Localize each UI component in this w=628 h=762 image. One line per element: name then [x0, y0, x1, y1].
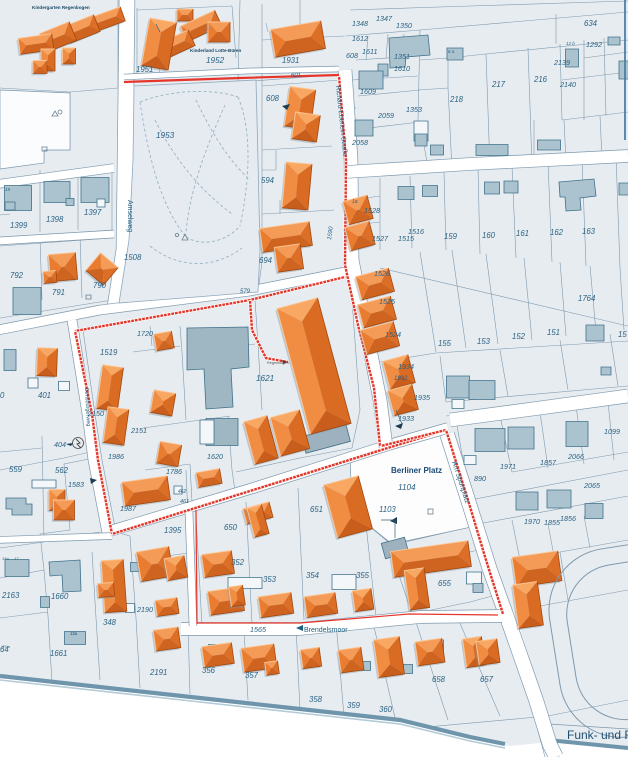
svg-text:151: 151: [547, 328, 560, 337]
svg-text:1528: 1528: [364, 206, 380, 215]
svg-text:1720: 1720: [137, 329, 153, 338]
svg-text:1292: 1292: [586, 40, 602, 49]
svg-text:404: 404: [54, 440, 66, 449]
svg-text:353: 353: [263, 575, 277, 584]
svg-text:6 a: 6 a: [448, 49, 455, 54]
svg-text:161: 161: [516, 229, 529, 238]
svg-text:791: 791: [52, 288, 65, 297]
svg-text:1660: 1660: [51, 592, 69, 601]
svg-text:Funk- und Fe: Funk- und Fe: [567, 728, 628, 742]
svg-text:2163: 2163: [1, 591, 20, 600]
svg-text:357: 357: [245, 671, 259, 680]
svg-text:2139: 2139: [553, 58, 570, 67]
svg-text:594: 594: [261, 176, 275, 185]
svg-text:462: 462: [178, 489, 187, 495]
svg-text:694: 694: [259, 256, 273, 265]
svg-text:1350: 1350: [396, 21, 412, 30]
svg-text:2065: 2065: [583, 481, 601, 490]
svg-text:1353: 1353: [406, 105, 422, 114]
svg-text:160: 160: [482, 231, 496, 240]
svg-text:13a: 13a: [70, 631, 78, 636]
svg-text:356: 356: [202, 666, 216, 675]
svg-text:19: 19: [5, 187, 11, 192]
svg-text:792: 792: [10, 271, 24, 280]
svg-text:2151: 2151: [130, 426, 147, 435]
svg-text:1524: 1524: [385, 330, 401, 339]
svg-text:1857: 1857: [540, 458, 557, 467]
svg-text:461: 461: [180, 499, 189, 505]
svg-text:1971: 1971: [500, 462, 516, 471]
svg-text:1855: 1855: [544, 518, 561, 527]
svg-text:Amselweg: Amselweg: [126, 200, 133, 232]
svg-text:1609: 1609: [360, 87, 376, 96]
svg-text:1970: 1970: [524, 517, 540, 526]
svg-text:12 b: 12 b: [566, 41, 575, 46]
svg-text:359: 359: [347, 701, 361, 710]
svg-text:608: 608: [266, 94, 280, 103]
svg-text:1934: 1934: [398, 362, 414, 371]
svg-text:355: 355: [356, 571, 370, 580]
svg-text:608: 608: [346, 51, 358, 60]
svg-text:2191: 2191: [149, 668, 167, 677]
svg-text:1565: 1565: [250, 625, 267, 634]
svg-text:2190: 2190: [136, 605, 153, 614]
svg-text:218: 218: [449, 95, 464, 104]
svg-text:1398: 1398: [46, 215, 64, 224]
svg-text:890: 890: [474, 474, 486, 483]
svg-text:658: 658: [432, 675, 446, 684]
svg-text:1525: 1525: [379, 297, 396, 306]
svg-text:1952: 1952: [206, 56, 225, 65]
svg-text:Brendelsmoor: Brendelsmoor: [304, 627, 348, 634]
svg-text:162: 162: [550, 228, 564, 237]
svg-text:1351: 1351: [394, 52, 410, 61]
svg-text:1399: 1399: [10, 221, 28, 230]
svg-text:1103: 1103: [379, 505, 396, 514]
svg-text:655: 655: [438, 579, 452, 588]
svg-text:1932: 1932: [394, 376, 408, 382]
svg-text:1931: 1931: [282, 56, 299, 65]
svg-text:559: 559: [9, 465, 23, 474]
svg-text:354: 354: [306, 571, 320, 580]
svg-text:1519: 1519: [100, 348, 118, 357]
svg-text:1764: 1764: [578, 294, 596, 303]
svg-text:1935: 1935: [414, 393, 431, 402]
svg-text:360: 360: [379, 705, 393, 714]
svg-text:358: 358: [309, 695, 323, 704]
svg-text:15: 15: [618, 330, 627, 339]
svg-text:562: 562: [55, 466, 69, 475]
svg-text:1933: 1933: [398, 414, 414, 423]
svg-text:352: 352: [231, 558, 245, 567]
svg-text:1348: 1348: [352, 19, 368, 28]
svg-text:1516: 1516: [408, 227, 424, 236]
svg-text:1786: 1786: [166, 467, 182, 476]
svg-text:1953: 1953: [156, 131, 175, 140]
svg-text:1951: 1951: [136, 65, 153, 74]
svg-text:1986: 1986: [108, 452, 124, 461]
svg-text:634: 634: [584, 19, 598, 28]
svg-text:657: 657: [480, 675, 494, 684]
svg-text:651: 651: [310, 505, 323, 514]
svg-text:1347: 1347: [376, 14, 393, 23]
svg-text:1987: 1987: [120, 504, 137, 513]
svg-text:Berliner Platz: Berliner Platz: [391, 466, 442, 475]
svg-text:2066: 2066: [567, 452, 584, 461]
svg-text:1621: 1621: [256, 374, 274, 383]
svg-text:163: 163: [582, 227, 596, 236]
svg-text:348: 348: [103, 618, 117, 627]
svg-text:650: 650: [224, 523, 238, 532]
svg-text:790: 790: [93, 281, 107, 290]
svg-text:159: 159: [444, 232, 458, 241]
svg-text:217: 217: [491, 80, 506, 89]
svg-text:601: 601: [291, 73, 301, 79]
svg-text:1a: 1a: [352, 199, 358, 205]
svg-text:401: 401: [38, 391, 51, 400]
svg-text:1610: 1610: [394, 64, 410, 73]
svg-text:0: 0: [0, 391, 5, 400]
svg-text:1508: 1508: [124, 253, 142, 262]
svg-text:1611: 1611: [362, 47, 377, 56]
svg-text:579: 579: [240, 289, 251, 295]
svg-text:Kinderland Lotte-Büren: Kinderland Lotte-Büren: [190, 48, 241, 53]
svg-text:2058: 2058: [351, 138, 368, 147]
svg-text:1395: 1395: [164, 526, 182, 535]
svg-text:1583: 1583: [68, 480, 84, 489]
svg-text:216: 216: [533, 75, 548, 84]
svg-text:1661: 1661: [50, 649, 67, 658]
svg-text:152: 152: [512, 332, 526, 341]
svg-text:1527: 1527: [372, 234, 389, 243]
svg-text:155: 155: [438, 339, 452, 348]
svg-text:15a: 15a: [2, 556, 9, 561]
svg-text:1526: 1526: [374, 269, 390, 278]
svg-text:Regenbogen: Regenbogen: [267, 361, 289, 365]
svg-text:1099: 1099: [604, 427, 620, 436]
svg-text:153: 153: [477, 337, 491, 346]
svg-text:1104: 1104: [398, 483, 416, 492]
svg-text:1620: 1620: [207, 452, 223, 461]
svg-text:2140: 2140: [559, 80, 576, 89]
svg-text:17 a: 17 a: [2, 644, 11, 649]
svg-text:1612: 1612: [352, 34, 368, 43]
svg-text:2059: 2059: [377, 111, 394, 120]
svg-text:1856: 1856: [560, 514, 576, 523]
svg-text:17: 17: [14, 556, 19, 561]
svg-text:1397: 1397: [84, 208, 102, 217]
svg-text:Kindergarten Regenbogen: Kindergarten Regenbogen: [32, 5, 90, 10]
